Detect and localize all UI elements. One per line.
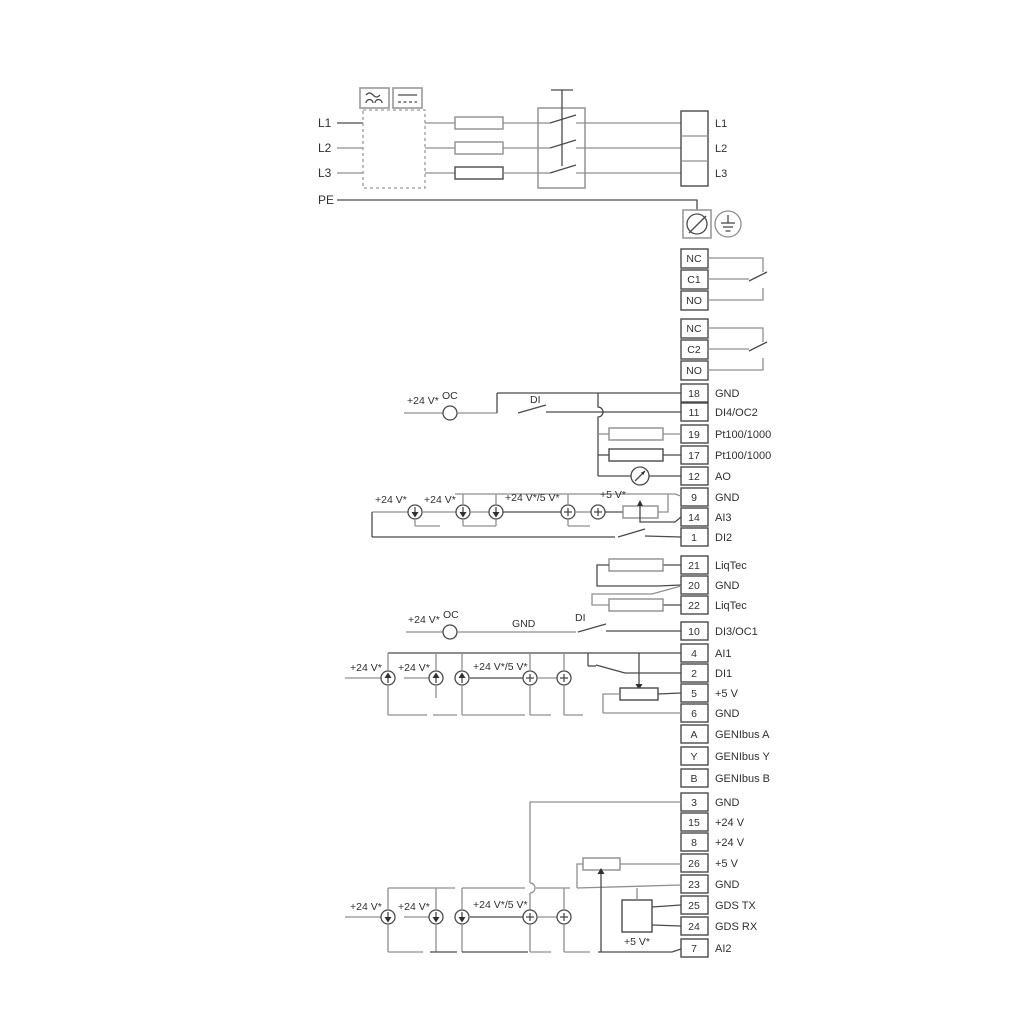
plus24-label: +24 V* — [424, 494, 456, 506]
relay1-contact — [708, 258, 767, 300]
relay1-nc: NC — [686, 253, 702, 265]
ai3-di2-wiring: +24 V* +24 V* +24 V*/5 V* +5 V* — [372, 489, 681, 537]
plus24-label: +24 V* — [350, 901, 382, 913]
mains-terminal-block: L1 L2 L3 — [681, 111, 727, 186]
di-label: DI — [575, 612, 586, 624]
terminal-12-label: AO — [715, 471, 731, 483]
terminal-19-label: Pt100/1000 — [715, 429, 771, 441]
terminal-9-label: GND — [715, 492, 740, 504]
open-collector-icon — [443, 406, 457, 420]
di4-switch — [518, 405, 546, 413]
voltage-source-icon — [561, 505, 575, 519]
relay1-c1: C1 — [687, 274, 701, 286]
terminal-5-no: 5 — [691, 688, 697, 700]
io-block-a: 18GND 11DI4/OC2 19Pt100/1000 17Pt100/100… — [681, 384, 771, 546]
terminal-2-no: 2 — [691, 668, 697, 680]
relay2-nc: NC — [686, 323, 702, 335]
liqtec-wiring — [592, 559, 681, 611]
terminal-26-label: +5 V — [715, 858, 739, 870]
plus5-label: +5 V* — [600, 489, 626, 501]
terminal-26-no: 26 — [688, 858, 700, 870]
current-source-icon — [429, 671, 443, 685]
mains-out-label-l2: L2 — [715, 143, 727, 155]
terminal-25-no: 25 — [688, 900, 700, 912]
terminal-22-label: LiqTec — [715, 600, 747, 612]
plus24-5v-label: +24 V*/5 V* — [473, 899, 528, 911]
terminal-10-no: 10 — [688, 626, 700, 638]
terminal-11-no: 11 — [689, 407, 700, 419]
ai2-gds-wiring: +24 V* +24 V* +24 V*/5 V* — [345, 802, 681, 952]
terminal-2-label: DI1 — [715, 668, 732, 680]
plus24-label: +24 V* — [407, 395, 439, 407]
ai1-di1-wiring: +24 V* +24 V* +24 V*/5 V* — [345, 653, 681, 715]
liqtec-sensor-2 — [609, 599, 663, 611]
terminal-6-label: GND — [715, 708, 740, 720]
dc-symbol-icon — [393, 88, 422, 108]
terminal-8-label: +24 V — [715, 837, 745, 849]
terminal-5-label: +5 V — [715, 688, 739, 700]
terminal-14-label: AI3 — [715, 512, 732, 524]
mains-out-label-l3: L3 — [715, 168, 727, 180]
di3-switch — [578, 624, 606, 632]
relay2-block: NC C2 NO — [681, 319, 767, 380]
current-source-icon — [456, 505, 470, 519]
terminal-4-no: 4 — [691, 648, 697, 660]
terminal-20-label: GND — [715, 580, 740, 592]
terminal-1-label: DI2 — [715, 532, 732, 544]
current-source-icon — [381, 910, 395, 924]
setpoint-potentiometer — [623, 494, 681, 522]
wiring-diagram: L1 L2 L3 PE — [0, 0, 1024, 1024]
terminal-7-no: 7 — [691, 943, 697, 955]
plus24-5v-label: +24 V*/5 V* — [505, 492, 560, 504]
terminal-B-label: GENIbus B — [715, 773, 770, 785]
di2-switch — [618, 529, 645, 537]
di-label: DI — [530, 394, 541, 406]
terminal-4-label: AI1 — [715, 648, 732, 660]
relay1-no: NO — [686, 295, 702, 307]
terminal-21-label: LiqTec — [715, 560, 747, 572]
terminal-22-no: 22 — [688, 600, 700, 612]
current-source-icon — [455, 910, 469, 924]
relay1-block: NC C1 NO — [681, 249, 767, 310]
oc-label: OC — [443, 609, 459, 621]
terminal-Y-no: Y — [690, 751, 697, 763]
current-source-icon — [408, 505, 422, 519]
di1-switch — [596, 665, 625, 673]
terminal-18-label: GND — [715, 388, 740, 400]
terminal-6-no: 6 — [691, 708, 697, 720]
mains-in-label-l3: L3 — [318, 166, 332, 180]
terminal-10-label: DI3/OC1 — [715, 626, 758, 638]
current-source-icon — [429, 910, 443, 924]
terminal-A-no: A — [690, 729, 697, 741]
terminal-19-no: 19 — [688, 429, 700, 441]
liqtec-sensor-1 — [609, 559, 663, 571]
gds-module-box: +5 V* — [622, 888, 681, 948]
relay2-contact — [708, 328, 767, 370]
plus24-5v-label: +24 V*/5 V* — [473, 661, 528, 673]
earth-icon — [715, 211, 741, 237]
relay2-c2: C2 — [687, 344, 701, 356]
voltage-source-icon — [523, 910, 537, 924]
io-block-b: 21LiqTec 20GND 22LiqTec — [681, 556, 747, 614]
plus24-label: +24 V* — [398, 901, 430, 913]
plus24-label: +24 V* — [375, 494, 407, 506]
terminal-20-no: 20 — [688, 580, 700, 592]
mains-out-label-l1: L1 — [715, 118, 727, 130]
voltage-source-icon — [591, 505, 605, 519]
plus24-label: +24 V* — [350, 662, 382, 674]
di4-oc2-wiring: +24 V* OC DI — [404, 390, 681, 485]
terminal-18-no: 18 — [688, 388, 700, 400]
io-block-c: 10DI3/OC1 4AI1 2DI1 5+5 V 6GND AGENIbus … — [681, 622, 770, 787]
wire-jump — [530, 883, 535, 893]
current-source-icon — [455, 671, 469, 685]
terminal-17-no: 17 — [688, 450, 700, 462]
pt100-resistor-1 — [609, 428, 663, 440]
plus5-label: +5 V* — [624, 936, 650, 948]
converter-dashed-box — [363, 110, 425, 188]
terminal-3-no: 3 — [691, 797, 697, 809]
terminal-3-label: GND — [715, 797, 740, 809]
terminal-B-no: B — [690, 773, 697, 785]
voltage-source-icon — [523, 671, 537, 685]
ac-symbol-icon — [360, 88, 389, 108]
fuse-l1 — [455, 117, 503, 129]
di3-oc1-wiring: +24 V* OC GND DI — [406, 609, 681, 639]
fuse-l3 — [455, 167, 503, 179]
terminal-24-label: GDS RX — [715, 921, 758, 933]
mains-in-label-pe: PE — [318, 193, 334, 207]
terminal-9-no: 9 — [691, 492, 697, 504]
mains-input-section: L1 L2 L3 PE — [318, 88, 741, 238]
terminal-15-no: 15 — [688, 817, 700, 829]
relay2-no: NO — [686, 365, 702, 377]
terminal-24-no: 24 — [688, 921, 700, 933]
plus24-label: +24 V* — [408, 614, 440, 626]
current-source-icon — [489, 505, 503, 519]
terminal-23-no: 23 — [688, 879, 700, 891]
terminal-11-label: DI4/OC2 — [715, 407, 758, 419]
current-source-icon — [381, 671, 395, 685]
analog-output-meter-icon — [631, 467, 649, 485]
terminal-15-label: +24 V — [715, 817, 745, 829]
terminal-25-label: GDS TX — [715, 900, 756, 912]
terminal-8-no: 8 — [691, 837, 697, 849]
terminal-A-label: GENIbus A — [715, 729, 770, 741]
pt100-resistor-2 — [609, 449, 663, 461]
mains-in-label-l2: L2 — [318, 141, 332, 155]
ai1-potentiometer — [603, 653, 681, 713]
fuse-l2 — [455, 142, 503, 154]
pe-wire — [337, 200, 697, 210]
terminal-17-label: Pt100/1000 — [715, 450, 771, 462]
mains-in-label-l1: L1 — [318, 116, 332, 130]
terminal-12-no: 12 — [688, 471, 700, 483]
gnd-label: GND — [512, 618, 536, 630]
terminal-21-no: 21 — [688, 560, 700, 572]
terminal-Y-label: GENIbus Y — [715, 751, 770, 763]
io-block-d: 3GND 15+24 V 8+24 V 26+5 V 23GND 25GDS T… — [681, 793, 758, 957]
open-collector-icon — [443, 625, 457, 639]
terminal-7-label: AI2 — [715, 943, 732, 955]
terminal-1-no: 1 — [691, 532, 697, 544]
voltage-source-icon — [557, 910, 571, 924]
cable-entry-icon — [683, 210, 711, 238]
terminal-23-label: GND — [715, 879, 740, 891]
plus24-label: +24 V* — [398, 662, 430, 674]
oc-label: OC — [442, 390, 458, 402]
wiring-diagram-svg: L1 L2 L3 PE — [0, 0, 1024, 1024]
voltage-source-icon — [557, 671, 571, 685]
terminal-14-no: 14 — [688, 512, 700, 524]
